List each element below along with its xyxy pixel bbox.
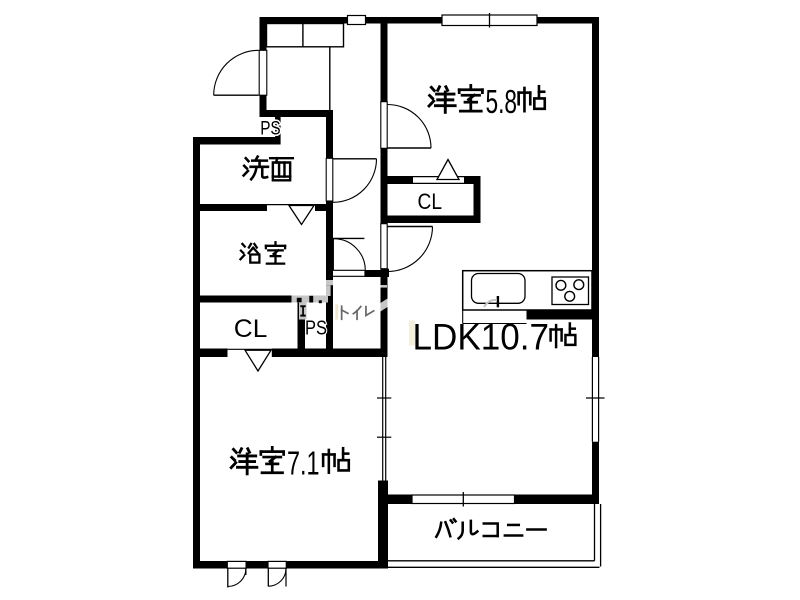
svg-text:5.8: 5.8 (486, 83, 518, 120)
svg-text:PS: PS (260, 119, 281, 140)
svg-text:CL: CL (234, 315, 268, 343)
svg-text:LDK10.7: LDK10.7 (413, 316, 550, 358)
svg-text:7.1: 7.1 (287, 445, 320, 482)
svg-text:PS: PS (305, 318, 327, 340)
svg-text:CL: CL (418, 189, 443, 214)
